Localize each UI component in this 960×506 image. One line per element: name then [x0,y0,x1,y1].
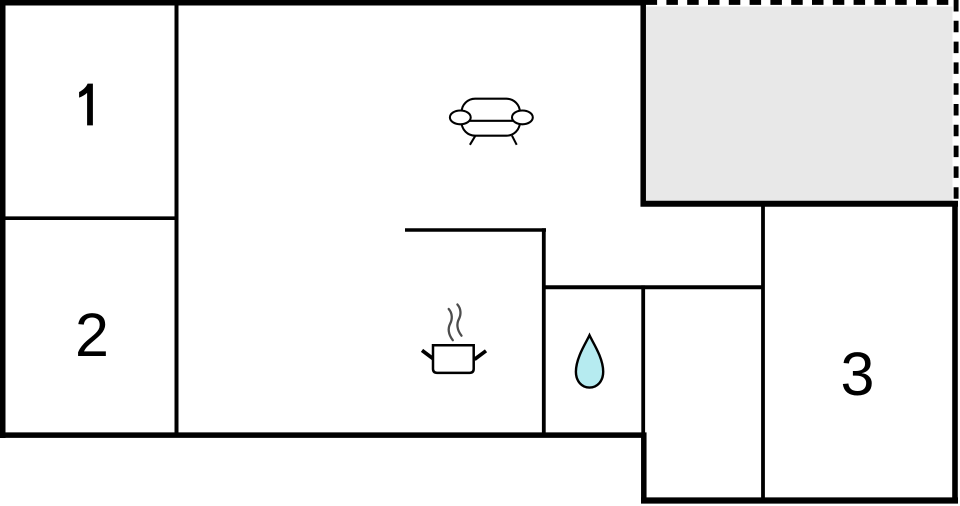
svg-text:2: 2 [75,301,109,369]
svg-text:3: 3 [841,340,875,408]
